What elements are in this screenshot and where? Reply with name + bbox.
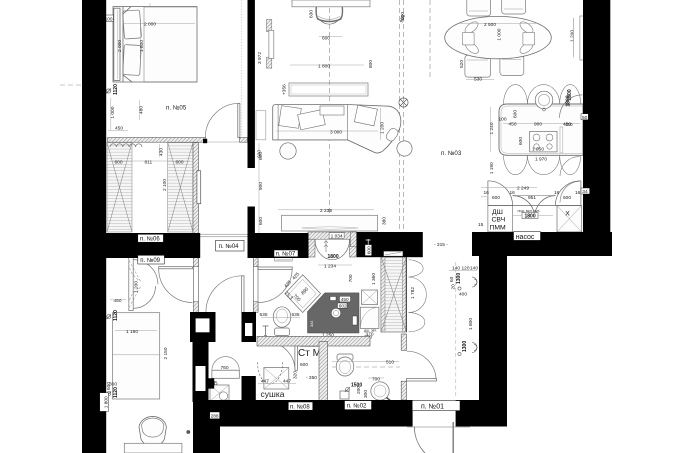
svg-text:600: 600	[176, 159, 184, 165]
svg-text:2 500: 2 500	[484, 22, 496, 28]
svg-text:Б: Б	[214, 381, 218, 387]
svg-text:2 235: 2 235	[320, 208, 332, 214]
svg-text:140: 140	[470, 265, 478, 271]
svg-text:сушка: сушка	[261, 389, 285, 399]
svg-text:п. №02: п. №02	[347, 403, 367, 410]
svg-text:600: 600	[258, 152, 264, 160]
svg-text:1 800: 1 800	[318, 63, 330, 69]
svg-text:1120: 1120	[113, 387, 119, 398]
svg-text:X: X	[565, 210, 570, 217]
svg-text:811: 811	[145, 159, 153, 165]
svg-text:600: 600	[258, 217, 264, 225]
svg-text:535: 535	[260, 312, 268, 318]
svg-text:+356: +356	[282, 84, 288, 95]
svg-text:400: 400	[459, 292, 467, 298]
svg-text:600: 600	[322, 36, 330, 42]
svg-text:п. №06: п. №06	[140, 236, 160, 243]
svg-text:700: 700	[372, 377, 380, 383]
svg-text:1 800: 1 800	[103, 396, 109, 408]
svg-text:760: 760	[221, 365, 229, 371]
svg-text:15: 15	[478, 222, 484, 228]
svg-text:344: 344	[310, 321, 314, 327]
svg-text:100: 100	[499, 117, 507, 123]
svg-text:200: 200	[356, 386, 362, 394]
svg-text:п. №01: п. №01	[421, 404, 444, 411]
svg-text:1800: 1800	[525, 213, 536, 219]
svg-text:450: 450	[509, 122, 517, 128]
svg-text:2 150: 2 150	[163, 347, 169, 359]
svg-text:1 160: 1 160	[126, 329, 138, 335]
svg-text:1 000: 1 000	[496, 28, 502, 40]
svg-text:1 800: 1 800	[139, 40, 145, 52]
svg-text:510: 510	[386, 359, 394, 365]
svg-text:450: 450	[341, 297, 349, 303]
svg-text:3 972: 3 972	[257, 52, 263, 64]
svg-text:1 360: 1 360	[371, 273, 377, 285]
svg-text:насос: насос	[516, 234, 535, 241]
svg-text:1 800: 1 800	[468, 318, 474, 330]
svg-text:600: 600	[106, 382, 112, 390]
svg-text:п. №07: п. №07	[276, 251, 296, 258]
svg-text:450: 450	[565, 122, 573, 128]
svg-text:1 970: 1 970	[535, 157, 547, 163]
svg-text:450: 450	[115, 126, 123, 132]
svg-text:СВЧ: СВЧ	[492, 217, 506, 224]
svg-text:16: 16	[510, 190, 516, 196]
svg-text:1 200: 1 200	[134, 281, 140, 293]
svg-text:1300: 1300	[456, 273, 462, 284]
svg-text:34: 34	[582, 189, 588, 195]
svg-text:16: 16	[554, 190, 560, 196]
svg-text:1 240: 1 240	[489, 122, 495, 134]
svg-text:1 950: 1 950	[532, 146, 544, 152]
svg-text:2 000: 2 000	[144, 22, 156, 28]
svg-text:Ст М: Ст М	[298, 348, 321, 359]
svg-text:430: 430	[159, 148, 165, 156]
svg-text:3 000: 3 000	[330, 129, 342, 135]
svg-text:50: 50	[582, 115, 588, 121]
svg-text:602: 602	[339, 303, 347, 309]
svg-text:630: 630	[308, 10, 314, 18]
svg-text:600: 600	[115, 159, 123, 165]
svg-text:60: 60	[449, 276, 455, 282]
svg-text:1 200: 1 200	[570, 30, 576, 42]
svg-text:- 315 -: - 315 -	[434, 242, 448, 248]
svg-text:1800: 1800	[566, 95, 572, 106]
svg-text:- 350: - 350	[306, 375, 317, 381]
svg-text:300: 300	[363, 390, 369, 398]
svg-text:п. №03: п. №03	[441, 150, 462, 157]
svg-text:600: 600	[513, 110, 519, 118]
svg-text:2 000: 2 000	[117, 40, 123, 52]
svg-text:1 000: 1 000	[110, 106, 116, 118]
svg-text:1 782: 1 782	[410, 287, 416, 299]
svg-text:600: 600	[300, 362, 308, 368]
svg-text:535: 535	[292, 312, 300, 318]
svg-text:2 100: 2 100	[162, 179, 168, 191]
svg-text:1 190: 1 190	[489, 162, 495, 174]
svg-text:1120: 1120	[113, 84, 119, 95]
svg-text:п. №04: п. №04	[219, 243, 239, 250]
svg-text:447: 447	[261, 379, 269, 385]
svg-text:600: 600	[367, 246, 373, 254]
svg-text:1120: 1120	[113, 310, 119, 321]
svg-text:п. №08: п. №08	[290, 404, 310, 411]
svg-text:120: 120	[462, 265, 470, 271]
svg-text:520: 520	[459, 60, 465, 68]
svg-text:900: 900	[258, 182, 264, 190]
svg-text:450: 450	[114, 298, 122, 304]
svg-text:600: 600	[492, 195, 500, 201]
svg-text:16: 16	[575, 190, 581, 196]
svg-text:600: 600	[563, 195, 571, 201]
svg-text:480: 480	[139, 106, 145, 114]
svg-text:1 234: 1 234	[324, 263, 336, 269]
svg-text:под. вкл. кух.: под. вкл. кух.	[518, 209, 541, 213]
svg-text:1 034: 1 034	[331, 233, 343, 239]
svg-text:800: 800	[368, 60, 374, 68]
svg-text:288: 288	[211, 413, 219, 419]
svg-text:1 200: 1 200	[380, 122, 386, 134]
svg-text:700: 700	[348, 274, 354, 282]
svg-text:п. №09: п. №09	[140, 257, 160, 264]
svg-text:2 249: 2 249	[517, 185, 529, 191]
svg-text:447: 447	[283, 379, 291, 385]
svg-text:530: 530	[474, 77, 482, 83]
svg-text:п. №05: п. №05	[166, 105, 187, 112]
svg-text:1800: 1800	[328, 254, 339, 260]
svg-text:ПММ: ПММ	[490, 225, 507, 232]
svg-text:140: 140	[452, 265, 460, 271]
svg-text:16: 16	[484, 190, 490, 196]
svg-text:951: 951	[528, 195, 536, 201]
svg-text:600: 600	[518, 137, 524, 145]
svg-text:900: 900	[400, 12, 406, 20]
svg-text:380: 380	[382, 217, 388, 225]
svg-text:ДШ: ДШ	[492, 209, 503, 216]
svg-text:900: 900	[534, 122, 542, 128]
svg-text:320: 320	[293, 371, 299, 379]
svg-text:1300: 1300	[462, 341, 468, 352]
